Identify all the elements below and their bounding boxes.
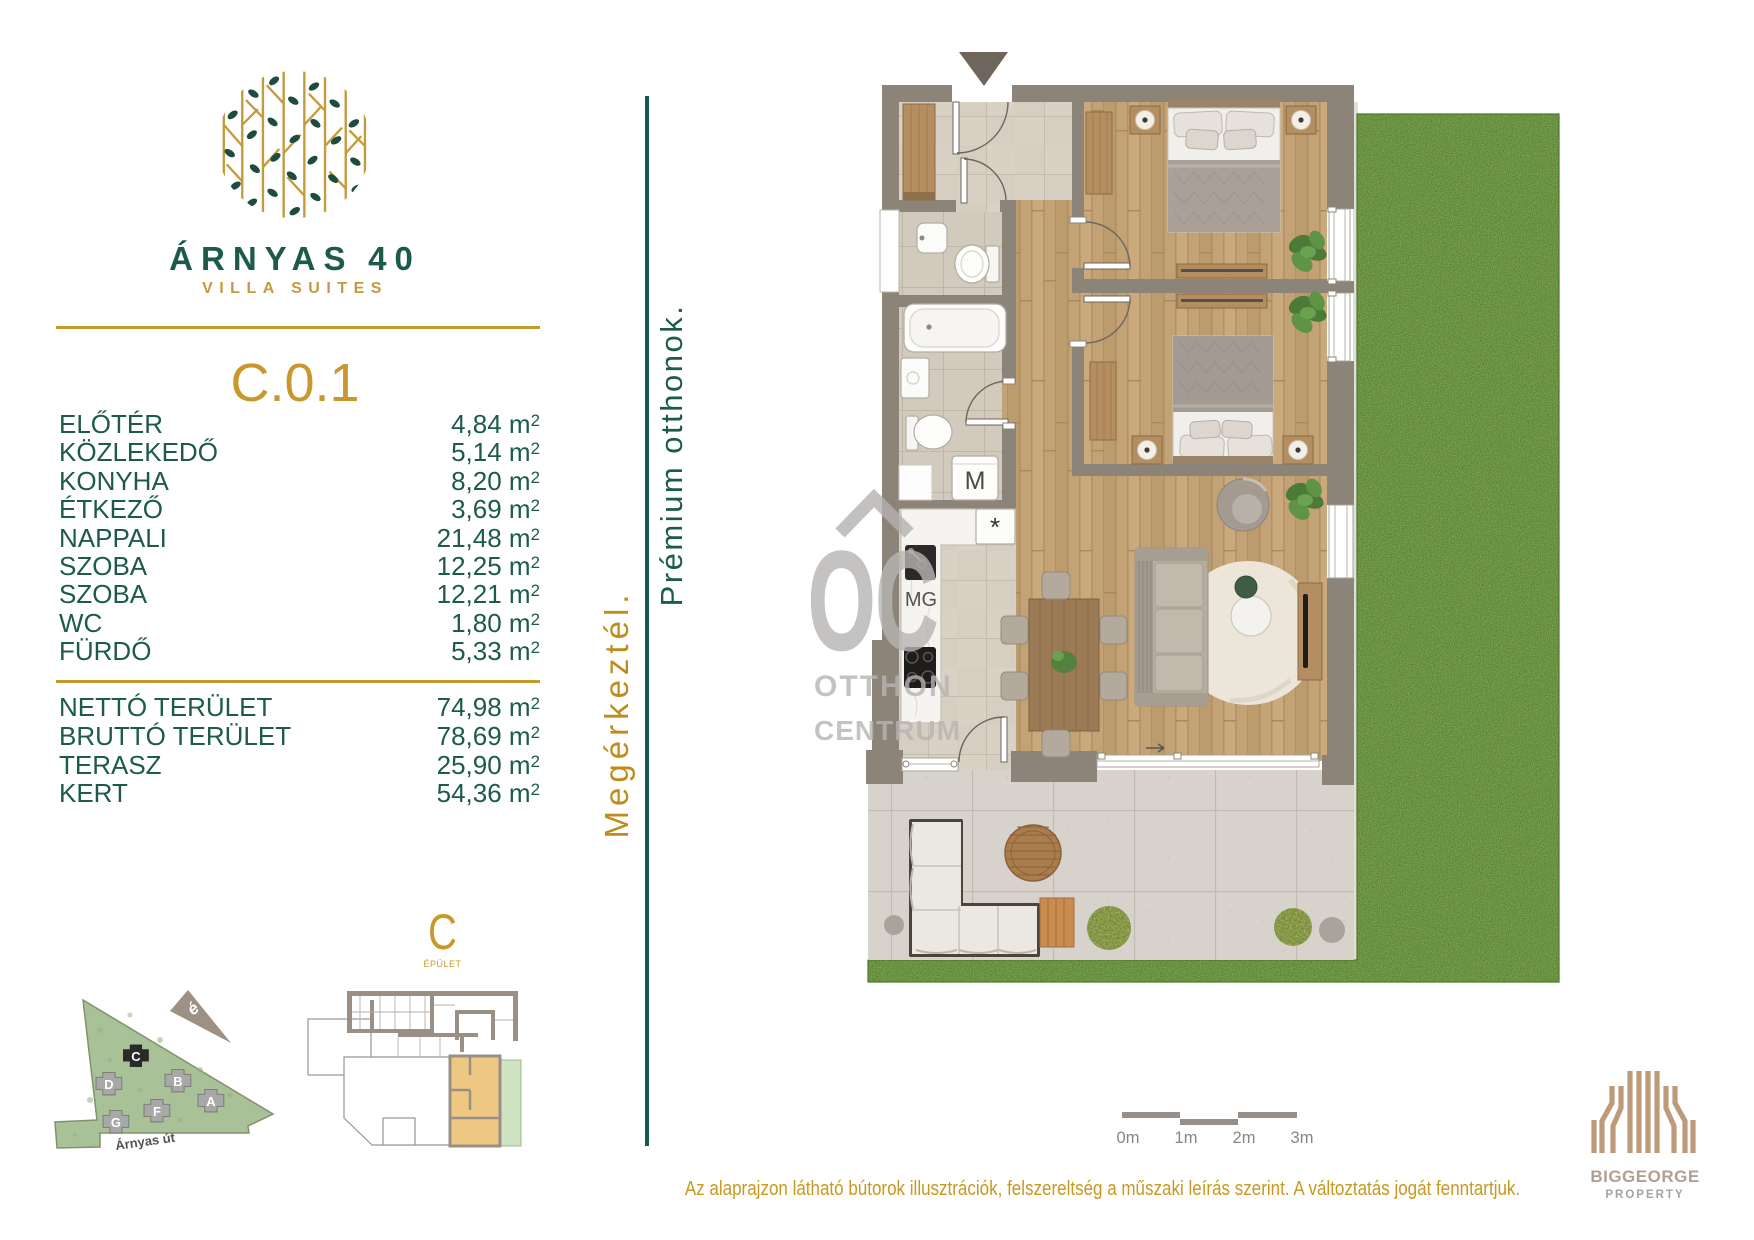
svg-text:OTTHON: OTTHON — [814, 670, 953, 703]
svg-text:A: A — [206, 1094, 215, 1109]
svg-text:OC: OC — [808, 523, 938, 679]
svg-text:1m: 1m — [1175, 1129, 1198, 1147]
svg-text:PROPERTY: PROPERTY — [1605, 1189, 1684, 1201]
svg-text:3m: 3m — [1291, 1129, 1314, 1147]
svg-text:D: D — [104, 1077, 113, 1092]
svg-text:M: M — [965, 467, 986, 495]
svg-text:CENTRUM: CENTRUM — [814, 715, 961, 746]
svg-text:2m: 2m — [1233, 1129, 1256, 1147]
svg-text:B: B — [173, 1074, 182, 1089]
svg-text:0m: 0m — [1117, 1129, 1140, 1147]
svg-text:C: C — [131, 1049, 140, 1064]
svg-text:*: * — [990, 512, 1000, 542]
svg-text:F: F — [153, 1104, 161, 1119]
svg-text:G: G — [111, 1115, 121, 1130]
svg-text:BIGGEORGE: BIGGEORGE — [1590, 1167, 1699, 1186]
